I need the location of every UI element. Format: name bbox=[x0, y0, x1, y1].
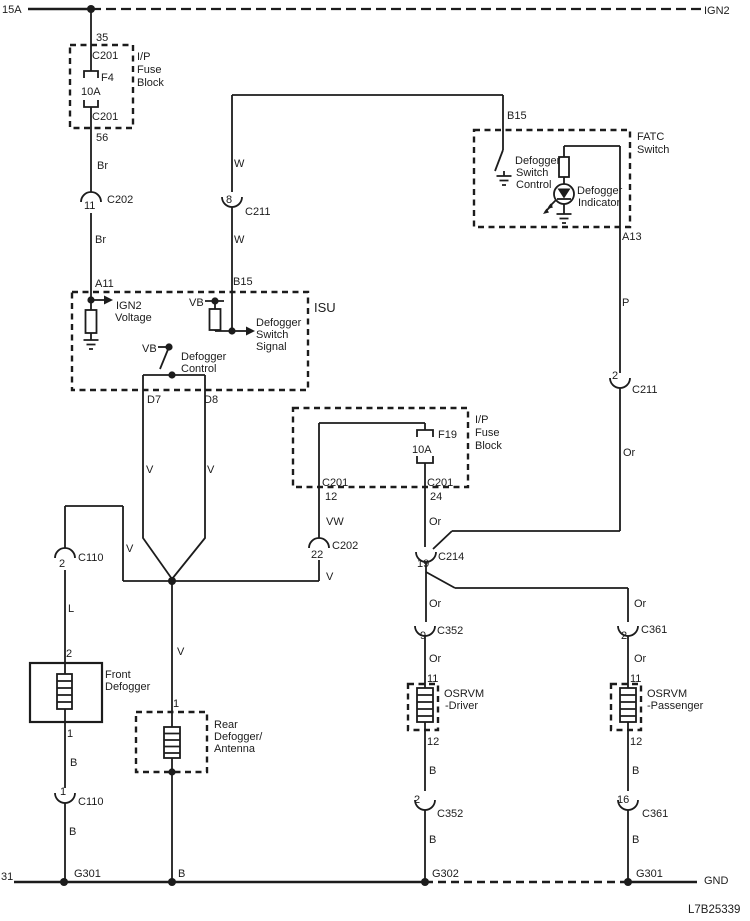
connector-pin-label: 2 bbox=[621, 630, 627, 642]
switch-blade-icon bbox=[495, 150, 503, 171]
wire-color-label: B bbox=[429, 834, 436, 846]
wire-color-label: Or bbox=[634, 598, 647, 610]
resistor-icon bbox=[86, 310, 97, 333]
wire-color-label: V bbox=[177, 646, 185, 658]
component-name: -Passenger bbox=[647, 700, 704, 712]
signal-name: Switch bbox=[516, 167, 548, 179]
fuse-id-label: F19 bbox=[438, 429, 457, 441]
wire-color-label: B bbox=[178, 868, 185, 880]
resistor-icon bbox=[559, 157, 569, 177]
pin-label: A11 bbox=[95, 278, 114, 290]
component-name: Fuse bbox=[137, 64, 161, 76]
wire-color-label: B bbox=[632, 834, 639, 846]
signal-arrow-icon bbox=[104, 296, 113, 305]
component-name: Block bbox=[475, 440, 502, 452]
top-power-rail bbox=[28, 5, 702, 13]
wire-color-label: Br bbox=[95, 234, 106, 246]
wire-color-label: P bbox=[622, 297, 629, 309]
ground-label: G302 bbox=[432, 868, 459, 880]
connector-label: C202 bbox=[332, 540, 358, 552]
pin-label: 12 bbox=[630, 736, 642, 748]
component-name: Defogger/ bbox=[214, 731, 263, 743]
ground-icon bbox=[497, 176, 512, 185]
pin-label: 11 bbox=[427, 673, 438, 685]
pin-label-31: 31 bbox=[1, 871, 13, 883]
junction-dot bbox=[60, 878, 68, 886]
pin-label: D8 bbox=[204, 394, 218, 406]
junction-dot bbox=[421, 878, 429, 886]
wire-color-label: V bbox=[146, 464, 154, 476]
component-name: ISU bbox=[314, 300, 336, 315]
wire-color-label: Or bbox=[623, 447, 636, 459]
junction-dot bbox=[168, 878, 176, 886]
wire-color-label: Or bbox=[429, 516, 442, 528]
connector-pin-label: 9 bbox=[420, 630, 426, 642]
signal-name: Defogger bbox=[256, 317, 302, 329]
wire-color-label: VW bbox=[326, 516, 344, 528]
connector-pin-label: 16 bbox=[617, 794, 629, 806]
signal-name: Defogger bbox=[577, 185, 623, 197]
signal-name: Defogger bbox=[515, 155, 561, 167]
connector-label: C201 bbox=[427, 477, 453, 489]
component-name: Antenna bbox=[214, 743, 256, 755]
junction-dot bbox=[168, 768, 175, 775]
pin-label: 24 bbox=[430, 491, 442, 503]
resistor-icon bbox=[210, 309, 221, 330]
signal-name: Control bbox=[181, 363, 216, 375]
component-name: Fuse bbox=[475, 427, 499, 439]
connector-pin-label: 2 bbox=[59, 558, 65, 570]
net-label-ign2: IGN2 bbox=[704, 5, 730, 17]
component-name: OSRVM bbox=[444, 688, 484, 700]
connector-arc-c202-22 bbox=[309, 538, 329, 548]
ground-label: G301 bbox=[74, 868, 101, 880]
defogger-circuit-diagram: 15A IGN2 31 GND L7B25339 35 C201 F4 10A … bbox=[0, 0, 750, 921]
pin-label: 1 bbox=[173, 698, 179, 710]
signal-name: Defogger bbox=[181, 351, 227, 363]
junction-dot bbox=[624, 878, 632, 886]
wire-color-label: L bbox=[68, 603, 74, 615]
wire-color-label: Or bbox=[429, 598, 442, 610]
connector-pin-label: 8 bbox=[226, 194, 232, 206]
signal-name: IGN2 bbox=[116, 300, 142, 312]
fuse-icon bbox=[417, 423, 433, 463]
fuse-id-label: F4 bbox=[101, 72, 114, 84]
signal-name: Signal bbox=[256, 341, 287, 353]
connector-label: C202 bbox=[107, 194, 133, 206]
component-name: FATC bbox=[637, 131, 664, 143]
signal-name: Switch bbox=[256, 329, 288, 341]
labels: 15A IGN2 31 GND L7B25339 35 C201 F4 10A … bbox=[1, 4, 740, 916]
wire-color-label: V bbox=[126, 543, 134, 555]
connector-pin-label: 2 bbox=[414, 794, 420, 806]
ground-icon bbox=[84, 340, 99, 349]
net-label-gnd: GND bbox=[704, 875, 729, 887]
fuse-rating-label: 10A bbox=[81, 86, 101, 98]
connector-pin-label: 22 bbox=[311, 549, 323, 561]
wire-color-label: Or bbox=[429, 653, 442, 665]
component-name: Rear bbox=[214, 719, 238, 731]
front-defogger bbox=[30, 663, 102, 882]
component-name: Switch bbox=[637, 144, 669, 156]
component-name: Front bbox=[105, 669, 131, 681]
switch-blade-icon bbox=[160, 347, 169, 369]
heater-element-icon bbox=[164, 727, 180, 758]
pin-label: D7 bbox=[147, 394, 161, 406]
connector-label: C110 bbox=[78, 552, 103, 564]
fuse-rating-label: 15A bbox=[2, 4, 22, 16]
heater-element-icon bbox=[417, 688, 433, 722]
pin-label: 2 bbox=[66, 648, 72, 660]
connector-pin-label: 2 bbox=[612, 370, 618, 382]
component-name: Block bbox=[137, 77, 164, 89]
wire-color-label: B bbox=[429, 765, 436, 777]
pin-label: 12 bbox=[427, 736, 439, 748]
fuse-rating-label: 10A bbox=[412, 444, 432, 456]
wire-color-label: V bbox=[326, 571, 334, 583]
connector-label: C214 bbox=[438, 551, 464, 563]
fuse-block-f19 bbox=[293, 408, 628, 622]
wire-color-label: V bbox=[207, 464, 215, 476]
pin-label: 35 bbox=[96, 32, 108, 44]
connector-label: C352 bbox=[437, 625, 463, 637]
heater-element-icon bbox=[620, 688, 636, 722]
connector-pin-label: 19 bbox=[417, 558, 429, 570]
connector-label: C211 bbox=[632, 384, 657, 396]
drawing-number: L7B25339 bbox=[688, 904, 740, 916]
wire-color-label: Or bbox=[634, 653, 647, 665]
wire-color-label: W bbox=[234, 158, 245, 170]
wiring-diagram-page: 15A IGN2 31 GND L7B25339 35 C201 F4 10A … bbox=[0, 0, 750, 921]
pin-label: 11 bbox=[630, 673, 641, 685]
component-name: Defogger bbox=[105, 681, 151, 693]
ground-icon bbox=[557, 214, 572, 223]
pin-label: B15 bbox=[233, 276, 253, 288]
component-name: I/P bbox=[475, 414, 488, 426]
rear-defogger bbox=[136, 712, 207, 882]
pin-label: 1 bbox=[67, 728, 73, 740]
wire-color-label: B bbox=[69, 826, 76, 838]
heater-element-icon bbox=[57, 674, 72, 709]
connector-label: C361 bbox=[641, 624, 667, 636]
signal-arrow-icon bbox=[246, 327, 255, 336]
connector-label: C361 bbox=[642, 808, 668, 820]
connector-label: C352 bbox=[437, 808, 463, 820]
connector-label: C201 bbox=[92, 111, 118, 123]
pin-label: B15 bbox=[507, 110, 527, 122]
connector-label: C201 bbox=[322, 477, 348, 489]
connector-label: C201 bbox=[92, 50, 118, 62]
net-label-vb: VB bbox=[142, 343, 157, 355]
component-name: OSRVM bbox=[647, 688, 687, 700]
connector-arc-c110-2 bbox=[55, 548, 75, 558]
signal-name: Voltage bbox=[115, 312, 152, 324]
pin-label: A13 bbox=[622, 231, 642, 243]
component-name: -Driver bbox=[445, 700, 478, 712]
signal-name: Indicator bbox=[578, 197, 621, 209]
wire-color-label: B bbox=[632, 765, 639, 777]
connector-label: C211 bbox=[245, 206, 270, 218]
pin-label: 12 bbox=[325, 491, 337, 503]
connector-label: C110 bbox=[78, 796, 103, 808]
wire-color-label: W bbox=[234, 234, 245, 246]
wire-color-label: B bbox=[70, 757, 77, 769]
pin-label: 56 bbox=[96, 132, 108, 144]
connector-pin-label: 1 bbox=[60, 786, 66, 798]
ground-label: G301 bbox=[636, 868, 663, 880]
net-label-vb: VB bbox=[189, 297, 204, 309]
ground-rail bbox=[14, 878, 697, 886]
connector-pin-label: 11 bbox=[84, 200, 95, 212]
wire-color-label: Br bbox=[97, 160, 108, 172]
component-name: I/P bbox=[137, 51, 150, 63]
signal-name: Control bbox=[516, 179, 551, 191]
